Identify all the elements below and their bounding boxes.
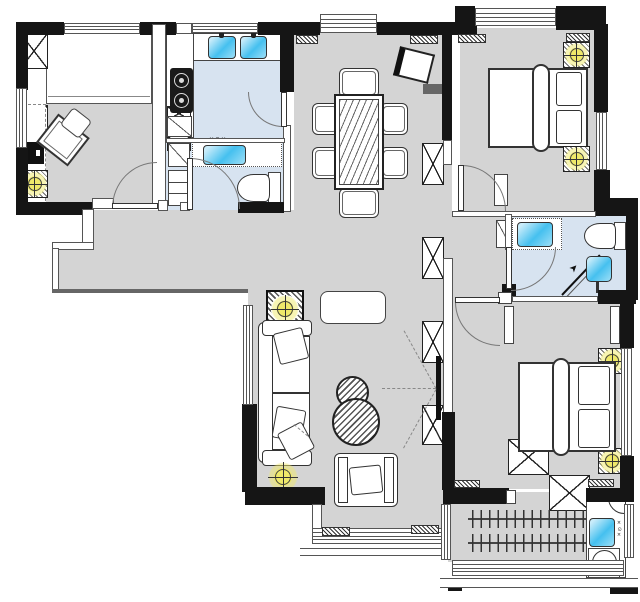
shower-head <box>586 256 612 282</box>
wall-thin <box>452 211 596 217</box>
door-jamb <box>506 490 516 504</box>
armchair-cushion <box>349 464 384 495</box>
kitchen-tap-icon <box>219 33 224 38</box>
kitchen-sink-left <box>208 36 236 59</box>
curtain-box <box>322 527 350 536</box>
armchair-arm-left <box>338 457 348 503</box>
bedroom-2-wardrobe-cell <box>549 475 590 511</box>
door-leaf <box>187 158 193 210</box>
bedroom-2-bed-fold <box>532 64 550 152</box>
master-wardrobe-cap <box>610 306 620 344</box>
wall <box>245 487 325 505</box>
door-leaf <box>455 297 500 303</box>
wall-thin <box>512 296 598 302</box>
bedroom-1-bed-line <box>48 96 150 97</box>
living-side-window <box>243 305 253 405</box>
kitchen-lower-cabinet <box>167 116 192 137</box>
kitchen-tap-icon <box>251 33 256 38</box>
dining-table <box>334 94 384 190</box>
wall-thin <box>52 248 59 292</box>
wall-thin <box>505 214 512 250</box>
bedroom-2-pillow <box>556 72 582 106</box>
curtain-box <box>296 35 318 44</box>
bedroom-2-lamp-icon <box>564 147 589 171</box>
wall <box>626 212 638 300</box>
master-bed-fold <box>552 358 570 456</box>
tv-view-line <box>382 388 436 389</box>
door-leaf <box>281 92 287 127</box>
curtain-box <box>458 34 486 43</box>
curtain-box <box>588 479 614 487</box>
wall-thin <box>158 200 168 211</box>
bedroom-1-window <box>64 23 140 34</box>
wall <box>16 202 92 215</box>
wall <box>586 488 634 502</box>
hallway-floor-step <box>58 248 94 292</box>
curtain-box <box>566 33 590 42</box>
wall <box>242 404 257 492</box>
wall <box>620 300 634 348</box>
floor-plan: ×⊙× ×⊙× ➤ <box>0 0 640 602</box>
laundry-sink <box>589 518 615 547</box>
wall-thin <box>166 138 285 143</box>
bedroom-1-tv-dot <box>36 150 40 156</box>
wall <box>443 488 509 504</box>
bedroom-1-bed <box>46 33 152 104</box>
curtain-box <box>410 35 438 44</box>
balcony-window <box>452 560 624 576</box>
door-leaf <box>458 165 464 211</box>
wall <box>442 412 455 490</box>
bedroom-2-lamp-icon <box>564 43 589 67</box>
dining-chair <box>380 103 408 135</box>
armchair-arm-right <box>384 457 394 503</box>
stove-burner-icon <box>174 73 189 88</box>
stove-burner-icon <box>174 93 189 108</box>
wall <box>238 202 284 213</box>
door-leaf <box>506 247 512 289</box>
kitchen-window <box>192 23 258 33</box>
balcony-side-window <box>624 504 634 558</box>
bedroom-2-pillow <box>556 110 582 144</box>
kitchen-counter-top <box>190 33 285 61</box>
wall <box>280 33 294 92</box>
wall-thin <box>443 140 452 165</box>
wall <box>442 35 452 140</box>
wall <box>16 24 28 90</box>
bay-side-wall <box>312 504 322 530</box>
living-floor-mat <box>320 291 386 324</box>
door-leaf <box>112 203 158 209</box>
door-jamb <box>498 292 512 304</box>
curtain-box <box>411 525 439 534</box>
wall-thin <box>92 198 114 209</box>
drying-rack <box>468 534 592 552</box>
wall <box>594 24 608 112</box>
drying-rack <box>468 510 592 528</box>
living-side-table-lamp-icon <box>271 295 299 323</box>
wall-thin <box>82 209 94 245</box>
round-table-large <box>332 398 380 446</box>
master-bath-toilet-bowl <box>584 223 616 249</box>
wall-line <box>52 289 248 293</box>
bathroom-1-toilet-bowl <box>237 174 270 202</box>
bay-window-sill <box>300 548 447 556</box>
wall <box>620 456 634 492</box>
master-pillow <box>578 409 610 448</box>
bathroom-1-shelf <box>168 170 189 206</box>
tv-wall <box>443 258 453 414</box>
wall <box>455 6 475 33</box>
wall <box>16 146 28 208</box>
wall-thin <box>176 23 192 34</box>
balcony-window-sill <box>440 578 638 588</box>
curtain-box <box>454 480 480 488</box>
kitchen-sink-right <box>240 36 267 59</box>
master-bath-sink <box>517 222 553 247</box>
bedroom-2-side-window <box>596 112 607 170</box>
master-wardrobe-cap <box>504 306 514 344</box>
hall-wardrobe-cell <box>422 237 444 279</box>
bedroom-1-side-window <box>16 88 27 148</box>
bedroom-2-window <box>475 8 556 26</box>
hall-wardrobe-cell <box>422 143 444 185</box>
dining-window <box>320 14 377 33</box>
dining-chair <box>339 188 379 218</box>
laundry-faucet-label: ×⊙× <box>616 520 622 539</box>
dining-chair <box>380 147 408 179</box>
hall-wardrobe-shelf <box>423 84 443 94</box>
balcony-door-frame <box>441 504 451 560</box>
master-pillow <box>578 366 610 405</box>
master-side-window <box>621 348 632 456</box>
